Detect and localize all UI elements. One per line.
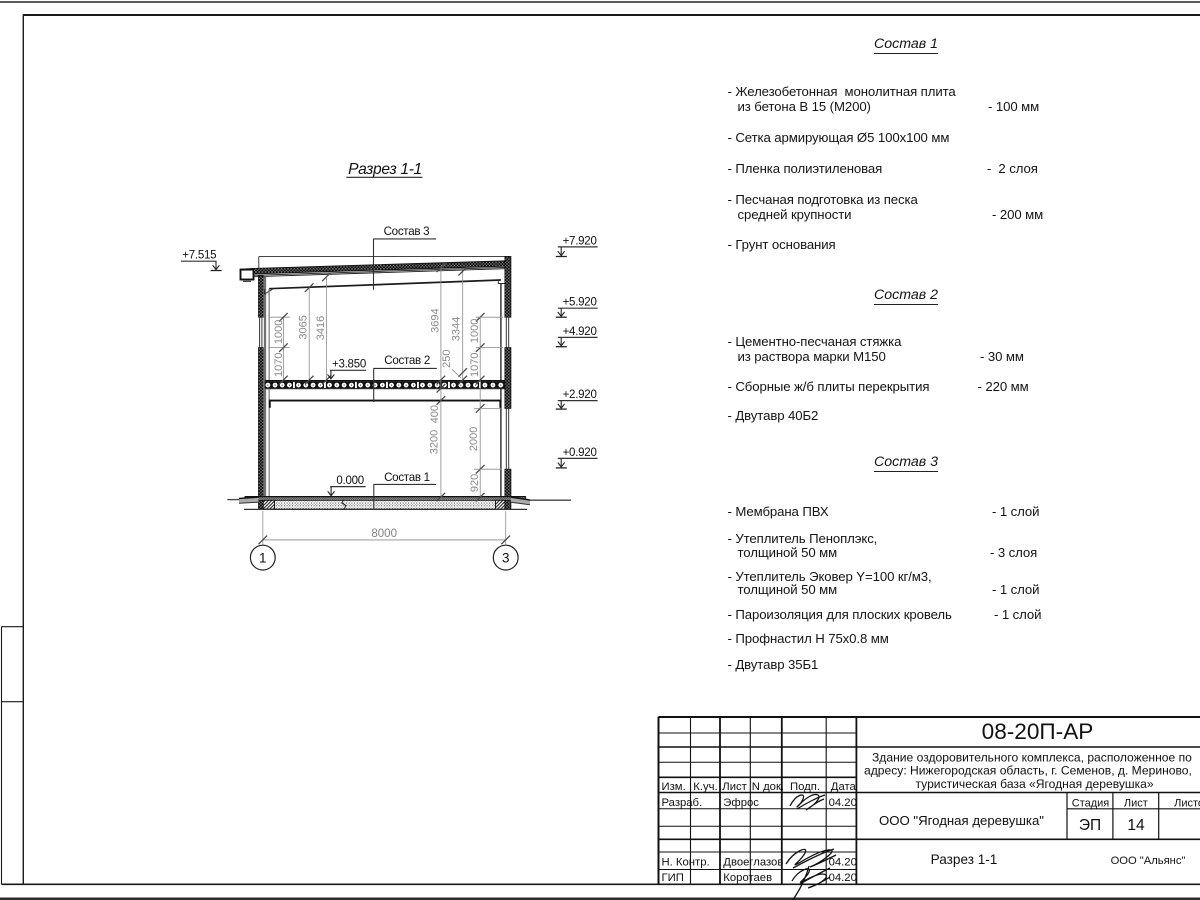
svg-text:Стадия: Стадия <box>1072 798 1110 810</box>
svg-text:Лист: Лист <box>722 781 747 793</box>
svg-text:ООО "Ягодная деревушка": ООО "Ягодная деревушка" <box>879 813 1044 828</box>
svg-text:0.000: 0.000 <box>336 475 364 487</box>
svg-text:Изм.: Изм. <box>662 781 686 793</box>
svg-text:Коротаев: Коротаев <box>723 872 772 884</box>
svg-text:3065: 3065 <box>298 315 310 339</box>
svg-text:Двоеглазов: Двоеглазов <box>723 856 783 868</box>
svg-text:Подп.: Подп. <box>790 781 820 793</box>
svg-text:Состав 1: Состав 1 <box>384 471 430 484</box>
svg-text:04.20: 04.20 <box>829 872 857 884</box>
svg-text:+3.850: +3.850 <box>332 359 366 371</box>
svg-text:1000: 1000 <box>273 320 285 344</box>
svg-text:Дата: Дата <box>831 781 857 793</box>
svg-text:Разраб.: Разраб. <box>662 797 703 809</box>
svg-text:+7.920: +7.920 <box>563 235 597 247</box>
svg-text:400: 400 <box>429 405 441 423</box>
svg-text:08-20П-АР: 08-20П-АР <box>982 719 1094 744</box>
svg-text:3416: 3416 <box>315 316 327 340</box>
svg-text:8000: 8000 <box>371 528 397 540</box>
svg-text:ГИП: ГИП <box>662 872 684 884</box>
svg-text:1070: 1070 <box>273 353 285 377</box>
svg-text:+0.920: +0.920 <box>563 447 597 459</box>
svg-text:1: 1 <box>259 550 267 565</box>
svg-text:04.20: 04.20 <box>829 797 857 809</box>
svg-text:Состав 2: Состав 2 <box>384 354 430 367</box>
svg-text:Эфрос: Эфрос <box>723 797 759 809</box>
svg-text:3344: 3344 <box>450 317 462 341</box>
svg-text:+5.920: +5.920 <box>563 297 597 309</box>
svg-text:туристическая база «Ягодная де: туристическая база «Ягодная деревушка» <box>916 777 1154 791</box>
svg-text:адресу: Нижегородская область,: адресу: Нижегородская область, г. Семено… <box>864 764 1192 778</box>
svg-text:14: 14 <box>1127 817 1145 834</box>
svg-text:Листов: Листов <box>1174 798 1200 810</box>
svg-text:3200: 3200 <box>429 430 441 454</box>
svg-text:+4.920: +4.920 <box>563 326 597 338</box>
svg-text:Здание оздоровительного компле: Здание оздоровительного комплекса, распо… <box>872 750 1192 764</box>
svg-text:1000: 1000 <box>469 319 481 343</box>
svg-text:1070: 1070 <box>469 353 481 377</box>
svg-text:3694: 3694 <box>429 308 441 332</box>
svg-text:Разрез 1-1: Разрез 1-1 <box>931 852 998 867</box>
svg-text:Н. Контр.: Н. Контр. <box>662 856 710 868</box>
svg-text:3: 3 <box>502 550 510 565</box>
svg-text:2000: 2000 <box>468 427 480 451</box>
svg-text:250: 250 <box>441 350 453 368</box>
svg-text:ЭП: ЭП <box>1079 817 1101 834</box>
svg-text:N док.: N док. <box>752 781 784 793</box>
svg-text:ООО "Альянс": ООО "Альянс" <box>1111 855 1186 867</box>
svg-text:Лист: Лист <box>1124 798 1148 810</box>
svg-text:Состав 3: Состав 3 <box>384 225 430 238</box>
svg-text:Разрез 1-1: Разрез 1-1 <box>348 161 422 178</box>
svg-text:04.20: 04.20 <box>829 856 857 868</box>
svg-text:К.уч.: К.уч. <box>693 781 717 793</box>
svg-text:+2.920: +2.920 <box>563 389 597 401</box>
svg-text:920: 920 <box>469 474 481 492</box>
svg-text:+7.515: +7.515 <box>182 250 216 262</box>
